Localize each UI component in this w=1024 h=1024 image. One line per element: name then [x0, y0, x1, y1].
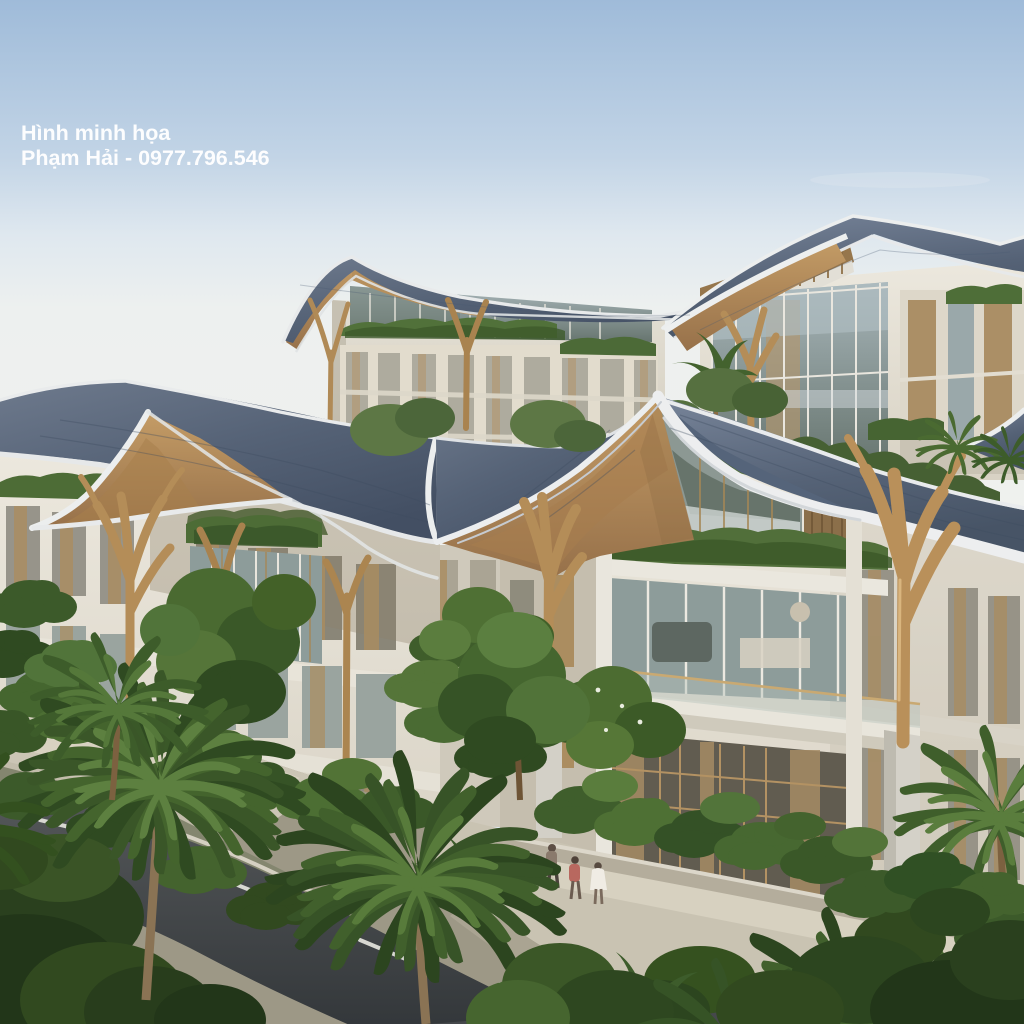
svg-text:Phạm Hải - 0977.796.546: Phạm Hải - 0977.796.546 — [21, 146, 270, 170]
svg-text:Hình minh họa: Hình minh họa — [21, 121, 171, 145]
